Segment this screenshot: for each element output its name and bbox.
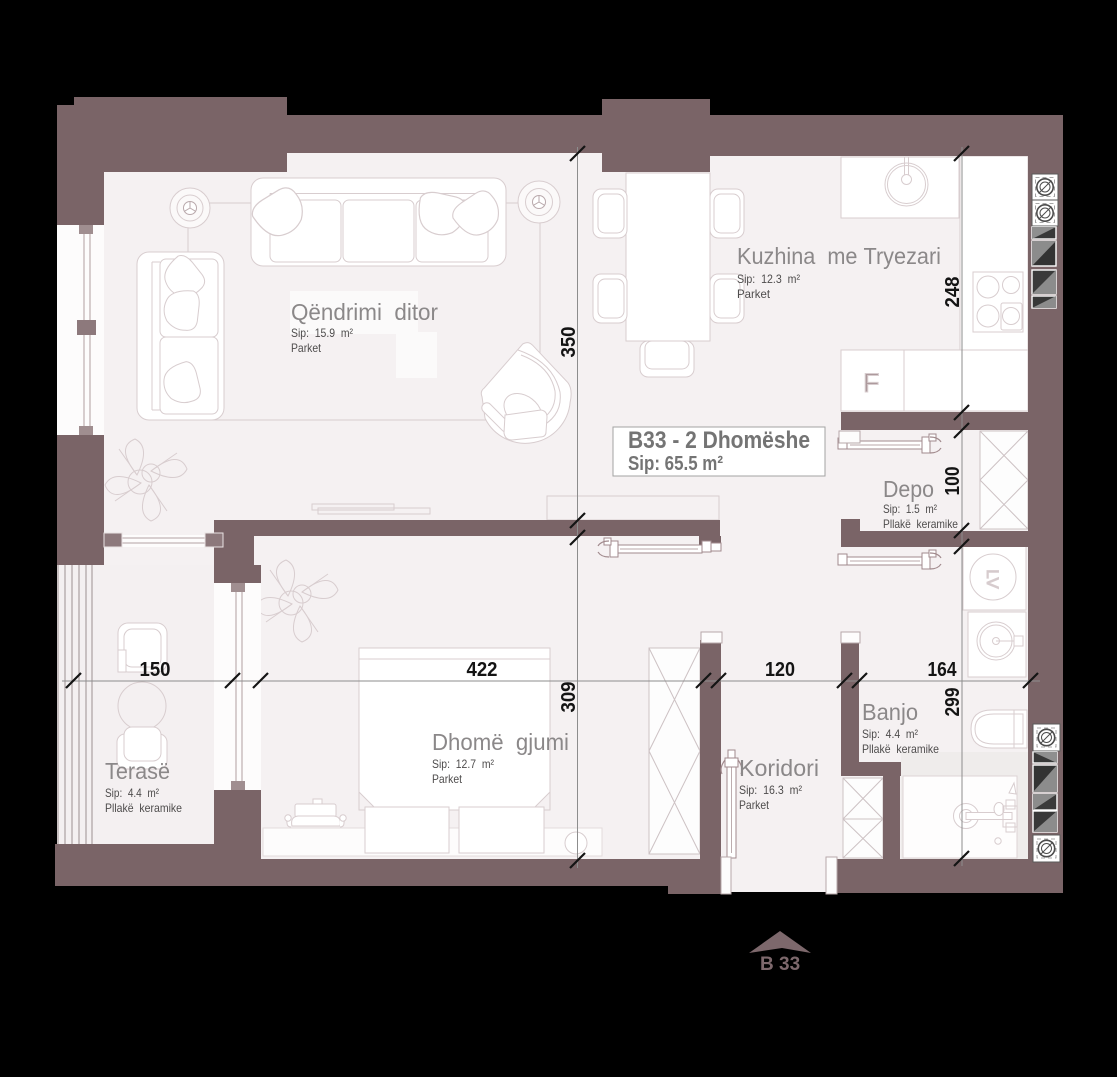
svg-text:164: 164 <box>928 658 957 681</box>
svg-text:350: 350 <box>557 327 580 358</box>
svg-text:Sip: 12.3 m²: Sip: 12.3 m² <box>737 272 800 286</box>
svg-text:Pllakë keramike: Pllakë keramike <box>862 742 939 756</box>
svg-text:Depo: Depo <box>883 476 934 502</box>
svg-text:Parket: Parket <box>291 341 322 355</box>
svg-text:Pllakë keramike: Pllakë keramike <box>883 517 958 531</box>
svg-text:Qëndrimi ditor: Qëndrimi ditor <box>291 299 438 325</box>
svg-text:Terasë: Terasë <box>105 758 170 784</box>
svg-text:Parket: Parket <box>739 798 770 812</box>
svg-text:Parket: Parket <box>432 772 463 786</box>
svg-text:Sip: 16.3 m²: Sip: 16.3 m² <box>739 783 802 797</box>
svg-text:Sip: 4.4 m²: Sip: 4.4 m² <box>862 727 918 741</box>
svg-text:F: F <box>863 368 880 398</box>
svg-text:Dhomë gjumi: Dhomë gjumi <box>432 729 569 755</box>
svg-text:299: 299 <box>941 688 964 717</box>
svg-text:Kuzhina me Tryezari: Kuzhina me Tryezari <box>737 243 941 269</box>
svg-text:309: 309 <box>557 682 580 713</box>
svg-text:Sip: 4.4 m²: Sip: 4.4 m² <box>105 786 159 800</box>
svg-text:248: 248 <box>941 277 964 308</box>
svg-text:100: 100 <box>941 467 964 496</box>
svg-text:120: 120 <box>765 658 795 681</box>
svg-text:Pllakë keramike: Pllakë keramike <box>105 801 182 815</box>
svg-text:B 33: B 33 <box>760 954 800 975</box>
svg-text:Sip: 1.5 m²: Sip: 1.5 m² <box>883 502 937 516</box>
svg-text:Sip: 15.9 m²: Sip: 15.9 m² <box>291 326 353 340</box>
svg-text:Parket: Parket <box>737 287 771 301</box>
svg-text:B33 - 2 Dhomëshe: B33 - 2 Dhomëshe <box>628 427 810 454</box>
svg-text:Koridori: Koridori <box>739 755 819 781</box>
svg-text:Sip: 12.7 m²: Sip: 12.7 m² <box>432 757 494 771</box>
svg-text:Banjo: Banjo <box>862 699 918 725</box>
svg-text:422: 422 <box>467 658 498 681</box>
svg-text:Sip: 65.5 m²: Sip: 65.5 m² <box>628 453 723 475</box>
svg-text:150: 150 <box>140 658 171 681</box>
svg-text:LV: LV <box>983 569 1002 589</box>
